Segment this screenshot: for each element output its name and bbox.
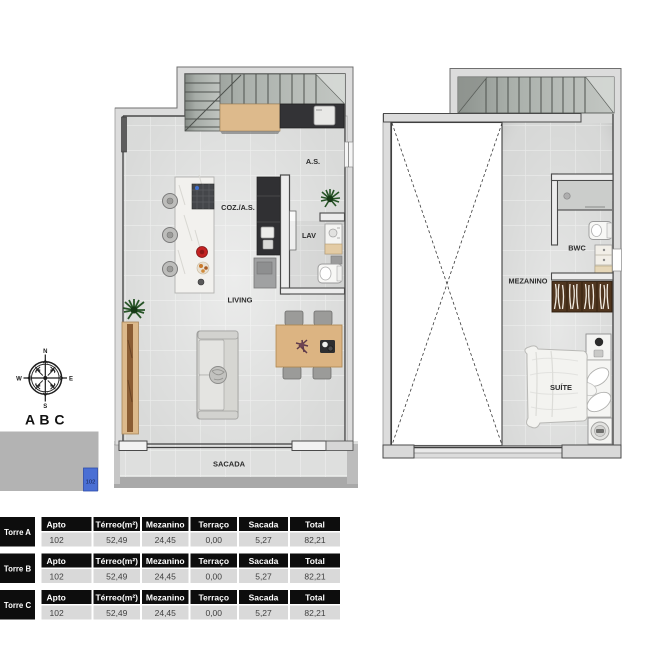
svg-text:24,45: 24,45 bbox=[155, 608, 177, 618]
svg-text:102: 102 bbox=[50, 535, 64, 545]
svg-text:102: 102 bbox=[50, 572, 64, 582]
svg-text:Sacada: Sacada bbox=[249, 593, 279, 603]
svg-text:5,27: 5,27 bbox=[255, 572, 272, 582]
svg-text:SUÍTE: SUÍTE bbox=[550, 383, 572, 392]
svg-text:82,21: 82,21 bbox=[304, 535, 326, 545]
svg-text:Apto: Apto bbox=[47, 593, 66, 603]
svg-text:Sacada: Sacada bbox=[249, 520, 279, 530]
svg-text:Apto: Apto bbox=[47, 520, 66, 530]
svg-text:Mezanino: Mezanino bbox=[146, 593, 185, 603]
svg-text:Apto: Apto bbox=[47, 556, 66, 566]
svg-text:Total: Total bbox=[305, 593, 325, 603]
svg-text:Térreo(m²): Térreo(m²) bbox=[95, 556, 138, 566]
svg-text:Total: Total bbox=[305, 520, 325, 530]
svg-text:S: S bbox=[43, 404, 47, 410]
svg-text:Terraço: Terraço bbox=[198, 520, 229, 530]
svg-text:Térreo(m²): Térreo(m²) bbox=[95, 593, 138, 603]
svg-text:Terraço: Terraço bbox=[198, 593, 229, 603]
svg-text:LAV: LAV bbox=[302, 231, 316, 240]
svg-text:52,49: 52,49 bbox=[106, 572, 128, 582]
svg-text:Mezanino: Mezanino bbox=[146, 520, 185, 530]
svg-text:82,21: 82,21 bbox=[304, 572, 326, 582]
svg-text:Torre A: Torre A bbox=[4, 528, 31, 537]
svg-text:52,49: 52,49 bbox=[106, 535, 128, 545]
svg-text:N: N bbox=[43, 349, 47, 355]
svg-text:A.S.: A.S. bbox=[306, 157, 320, 166]
svg-text:102: 102 bbox=[50, 608, 64, 618]
svg-text:5,27: 5,27 bbox=[255, 608, 272, 618]
svg-text:82,21: 82,21 bbox=[304, 608, 326, 618]
svg-text:Térreo(m²): Térreo(m²) bbox=[95, 520, 138, 530]
svg-text:COZ./A.S.: COZ./A.S. bbox=[221, 203, 255, 212]
svg-text:0,00: 0,00 bbox=[205, 608, 222, 618]
svg-text:A B C: A B C bbox=[25, 412, 65, 428]
svg-text:Torre C: Torre C bbox=[4, 601, 32, 610]
svg-text:0,00: 0,00 bbox=[205, 535, 222, 545]
svg-text:Torre B: Torre B bbox=[4, 565, 32, 574]
svg-text:Total: Total bbox=[305, 556, 325, 566]
svg-text:52,49: 52,49 bbox=[106, 608, 128, 618]
svg-text:24,45: 24,45 bbox=[155, 572, 177, 582]
svg-text:W: W bbox=[16, 376, 22, 382]
svg-text:BWC: BWC bbox=[568, 244, 586, 253]
svg-text:Terraço: Terraço bbox=[198, 556, 229, 566]
svg-text:E: E bbox=[69, 376, 73, 382]
svg-text:5,27: 5,27 bbox=[255, 535, 272, 545]
svg-text:Sacada: Sacada bbox=[249, 556, 279, 566]
svg-text:MEZANINO: MEZANINO bbox=[509, 277, 548, 286]
svg-text:102: 102 bbox=[86, 480, 96, 486]
svg-text:SACADA: SACADA bbox=[213, 460, 246, 469]
svg-text:LIVING: LIVING bbox=[227, 296, 252, 305]
svg-text:Mezanino: Mezanino bbox=[146, 556, 185, 566]
svg-text:24,45: 24,45 bbox=[155, 535, 177, 545]
svg-text:0,00: 0,00 bbox=[205, 572, 222, 582]
